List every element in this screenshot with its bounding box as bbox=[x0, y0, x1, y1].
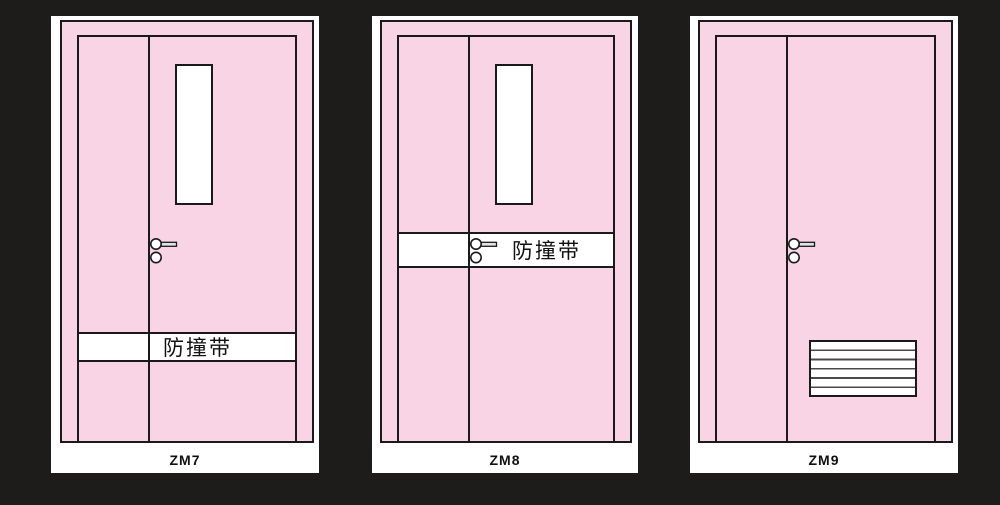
vent-louver bbox=[809, 340, 917, 397]
door-frame bbox=[698, 20, 953, 443]
door-panel-zm7: 防撞带 ZM7 bbox=[51, 16, 319, 473]
door-code-label: ZM9 bbox=[690, 452, 958, 468]
crash-band-label: 防撞带 bbox=[512, 235, 581, 265]
door-code-label: ZM8 bbox=[372, 452, 638, 468]
door-frame: 防撞带 bbox=[380, 20, 632, 443]
door-panel-zm8: 防撞带 ZM8 bbox=[372, 16, 638, 473]
drawing-sheet: 防撞带 ZM7 防撞带 bbox=[0, 0, 1000, 505]
door-handle-icon bbox=[149, 235, 179, 267]
door-handle-icon bbox=[469, 235, 499, 267]
door-leaves: 防撞带 bbox=[397, 35, 615, 441]
door-leaves bbox=[715, 35, 936, 441]
door-code-label: ZM7 bbox=[51, 452, 319, 468]
vision-window bbox=[495, 64, 533, 205]
door-frame: 防撞带 bbox=[60, 20, 314, 443]
door-handle-icon bbox=[787, 235, 817, 267]
door-panel-zm9: ZM9 bbox=[690, 16, 958, 473]
crash-band: 防撞带 bbox=[79, 332, 295, 362]
crash-band-label: 防撞带 bbox=[163, 332, 232, 362]
vision-window bbox=[175, 64, 213, 205]
door-leaves: 防撞带 bbox=[77, 35, 297, 441]
crash-band: 防撞带 bbox=[399, 232, 613, 268]
